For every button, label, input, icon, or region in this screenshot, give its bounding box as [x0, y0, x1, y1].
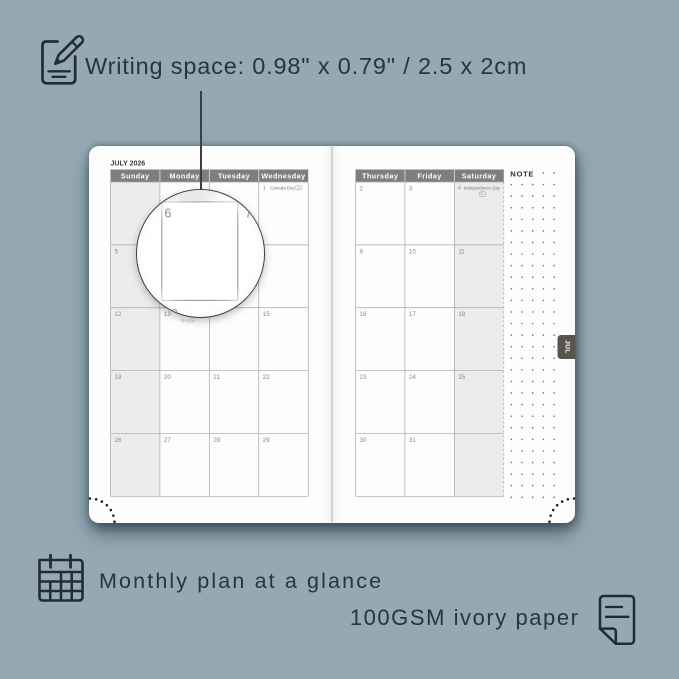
svg-text:10: 10 — [409, 248, 416, 255]
svg-text:4: 4 — [458, 186, 461, 192]
svg-text:21: 21 — [213, 374, 220, 381]
svg-text:16: 16 — [360, 311, 367, 318]
svg-text:31: 31 — [409, 437, 416, 444]
svg-text:3: 3 — [171, 307, 178, 318]
svg-text:Friday: Friday — [417, 171, 442, 180]
svg-text:27: 27 — [164, 437, 171, 444]
svg-text:7: 7 — [245, 207, 252, 221]
svg-text:3: 3 — [409, 185, 413, 192]
svg-text:23: 23 — [360, 374, 367, 381]
svg-text:30: 30 — [360, 437, 367, 444]
svg-text:2: 2 — [360, 185, 364, 192]
svg-text:17: 17 — [409, 311, 416, 318]
svg-text:19: 19 — [115, 374, 122, 381]
svg-text:Tuesday: Tuesday — [218, 171, 250, 180]
svg-text:28: 28 — [213, 437, 220, 444]
svg-text:B+L(S): B+L(S) — [181, 318, 196, 324]
svg-text:Thursday: Thursday — [362, 171, 398, 180]
svg-text:JUL: JUL — [563, 340, 570, 354]
svg-text:NOTE: NOTE — [510, 169, 534, 178]
svg-text:18: 18 — [458, 311, 465, 318]
svg-text:11: 11 — [458, 248, 465, 255]
svg-text:12: 12 — [115, 311, 122, 318]
svg-text:5: 5 — [115, 248, 119, 255]
svg-text:26: 26 — [115, 437, 122, 444]
svg-text:JULY 2026: JULY 2026 — [111, 160, 146, 167]
svg-text:6: 6 — [164, 207, 171, 221]
svg-text:29: 29 — [263, 437, 270, 444]
svg-text:Wednesday: Wednesday — [261, 171, 305, 180]
svg-text:Saturday: Saturday — [462, 171, 497, 180]
svg-text:31: 31 — [480, 192, 484, 196]
svg-text:22: 22 — [263, 374, 270, 381]
svg-text:Sunday: Sunday — [121, 171, 150, 180]
svg-text:31: 31 — [297, 186, 301, 190]
svg-text:25: 25 — [458, 374, 465, 381]
svg-text:Independence Day: Independence Day — [464, 185, 501, 190]
svg-text:9: 9 — [360, 248, 364, 255]
svg-text:24: 24 — [409, 374, 416, 381]
svg-text:Monday: Monday — [170, 171, 200, 180]
svg-text:20: 20 — [164, 374, 171, 381]
svg-text:Canada Day: Canada Day — [270, 185, 295, 190]
